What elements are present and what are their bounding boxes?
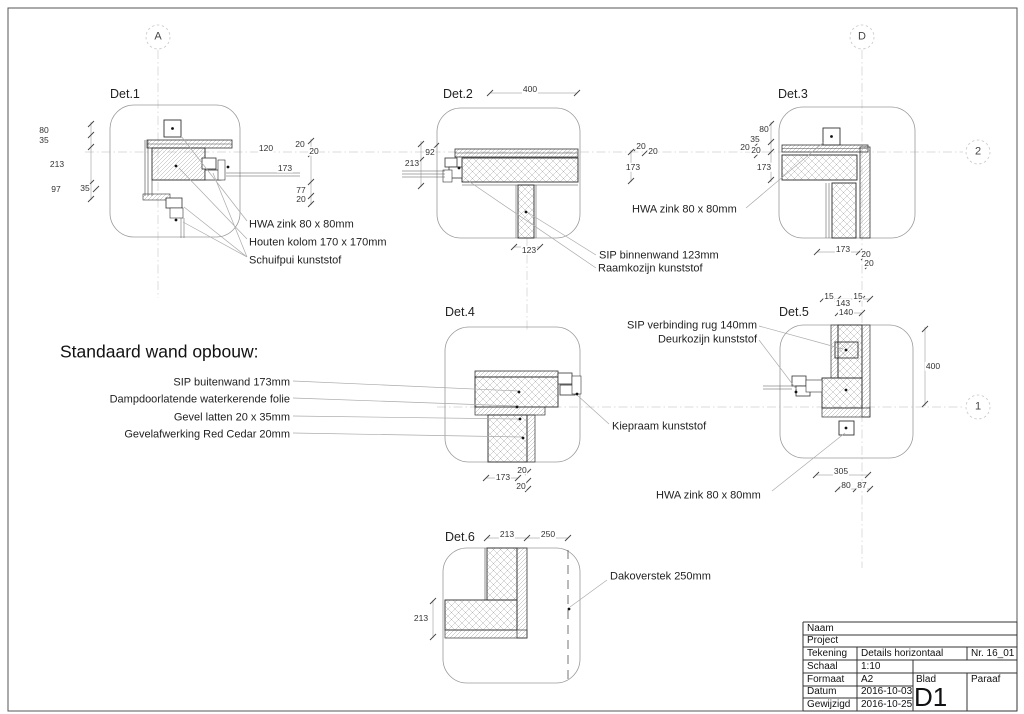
dim-label: 35 [749, 135, 760, 144]
dim-label: 97 [50, 185, 61, 194]
dim-label: 20 [515, 482, 526, 491]
detail-2-drawing [402, 149, 578, 238]
detail-6-drawing [445, 548, 568, 680]
dim-label: 123 [521, 246, 537, 255]
detail-3-title: Det.3 [778, 88, 808, 101]
dim-label: 120 [258, 144, 274, 153]
titleblock-tekening-value: Details horizontaal [861, 649, 943, 659]
dim-label: 20 [739, 143, 750, 152]
dim-label: 92 [424, 148, 435, 157]
annotation-sip-verbinding: SIP verbinding rug 140mm [627, 321, 757, 332]
detail-4-drawing [475, 371, 581, 462]
annotation-dakoverstek: Dakoverstek 250mm [610, 572, 711, 583]
annotation-sip-binnenwand: SIP binnenwand 123mm [599, 251, 719, 262]
titleblock-schaal-value: 1:10 [861, 662, 880, 672]
dim-label: 400 [522, 85, 538, 94]
dim-label: 20 [635, 142, 646, 151]
dim-label: 80 [758, 125, 769, 134]
dim-label: 400 [925, 362, 941, 371]
dim-label: 140 [838, 308, 854, 317]
annotation-kiepraam: Kiepraam kunststof [612, 422, 706, 433]
dim-label: 80 [840, 481, 851, 490]
titleblock-nr-value: Nr. 16_01 [971, 649, 1014, 659]
dim-label: 15 [823, 292, 834, 301]
dim-label: 35 [38, 136, 49, 145]
titleblock-datum-value: 2016-10-03 [861, 687, 912, 697]
dim-label: 20 [750, 146, 761, 155]
annotation-schuifpui: Schuifpui kunststof [249, 256, 341, 267]
titleblock-formaat-value: A2 [861, 675, 873, 685]
titleblock-paraaf-label: Paraaf [971, 675, 1000, 685]
wall-note-item: SIP buitenwand 173mm [173, 378, 290, 389]
dim-label: 20 [863, 259, 874, 268]
wall-note-title: Standaard wand opbouw: [60, 343, 258, 361]
detail-1-title: Det.1 [110, 88, 140, 101]
dim-label: 15 [852, 292, 863, 301]
titleblock-tekening-label: Tekening [807, 649, 847, 659]
grid-marker-2: 2 [975, 147, 981, 158]
annotation-hwa-det3: HWA zink 80 x 80mm [632, 205, 737, 216]
titleblock-naam-label: Naam [807, 624, 834, 634]
annotation-deurkozijn: Deurkozijn kunststof [658, 335, 757, 346]
dim-label: 173 [495, 473, 511, 482]
annotation-raamkozijn: Raamkozijn kunststof [598, 264, 703, 275]
titleblock-blad-value: D1 [914, 684, 947, 710]
dim-label: 173 [756, 163, 772, 172]
detail-3-drawing [782, 128, 870, 238]
dim-label: 173 [835, 245, 851, 254]
dim-label: 250 [540, 530, 556, 539]
dim-label: 80 [38, 126, 49, 135]
annotation-hwa-det5: HWA zink 80 x 80mm [656, 491, 761, 502]
titleblock-project-label: Project [807, 636, 838, 646]
dim-label: 87 [856, 481, 867, 490]
annotation-houten-kolom: Houten kolom 170 x 170mm [249, 238, 387, 249]
wall-note-item: Dampdoorlatende waterkerende folie [110, 395, 290, 406]
wall-note-item: Gevel latten 20 x 35mm [174, 413, 290, 424]
cad-sheet: A D 2 1 Det.1 Det.2 Det.3 Det.4 Det.5 De… [0, 0, 1024, 714]
grid-marker-d: D [858, 32, 866, 43]
dim-label: 173 [625, 163, 641, 172]
detail-6-title: Det.6 [445, 531, 475, 544]
grid-marker-a: A [154, 32, 161, 43]
dim-label: 305 [833, 467, 849, 476]
titleblock-schaal-label: Schaal [807, 662, 838, 672]
dim-label: 20 [308, 147, 319, 156]
titleblock-gewijzigd-value: 2016-10-25 [861, 700, 912, 710]
dim-label: 20 [516, 466, 527, 475]
dim-label: 35 [79, 184, 90, 193]
dim-label: 20 [647, 147, 658, 156]
dim-label: 173 [277, 164, 293, 173]
dim-label: 20 [295, 195, 306, 204]
detail-4-title: Det.4 [445, 306, 475, 319]
dim-label: 213 [49, 160, 65, 169]
titleblock-datum-label: Datum [807, 687, 836, 697]
annotation-hwa-det1: HWA zink 80 x 80mm [249, 220, 354, 231]
detail-5-title: Det.5 [779, 306, 809, 319]
dim-label: 213 [404, 159, 420, 168]
grid-marker-1: 1 [975, 402, 981, 413]
dim-label: 213 [499, 530, 515, 539]
dim-label: 20 [294, 140, 305, 149]
titleblock-gewijzigd-label: Gewijzigd [807, 700, 850, 710]
dim-label: 213 [413, 614, 429, 623]
wall-note-item: Gevelafwerking Red Cedar 20mm [124, 430, 290, 441]
detail-2-title: Det.2 [443, 88, 473, 101]
titleblock-formaat-label: Formaat [807, 675, 844, 685]
